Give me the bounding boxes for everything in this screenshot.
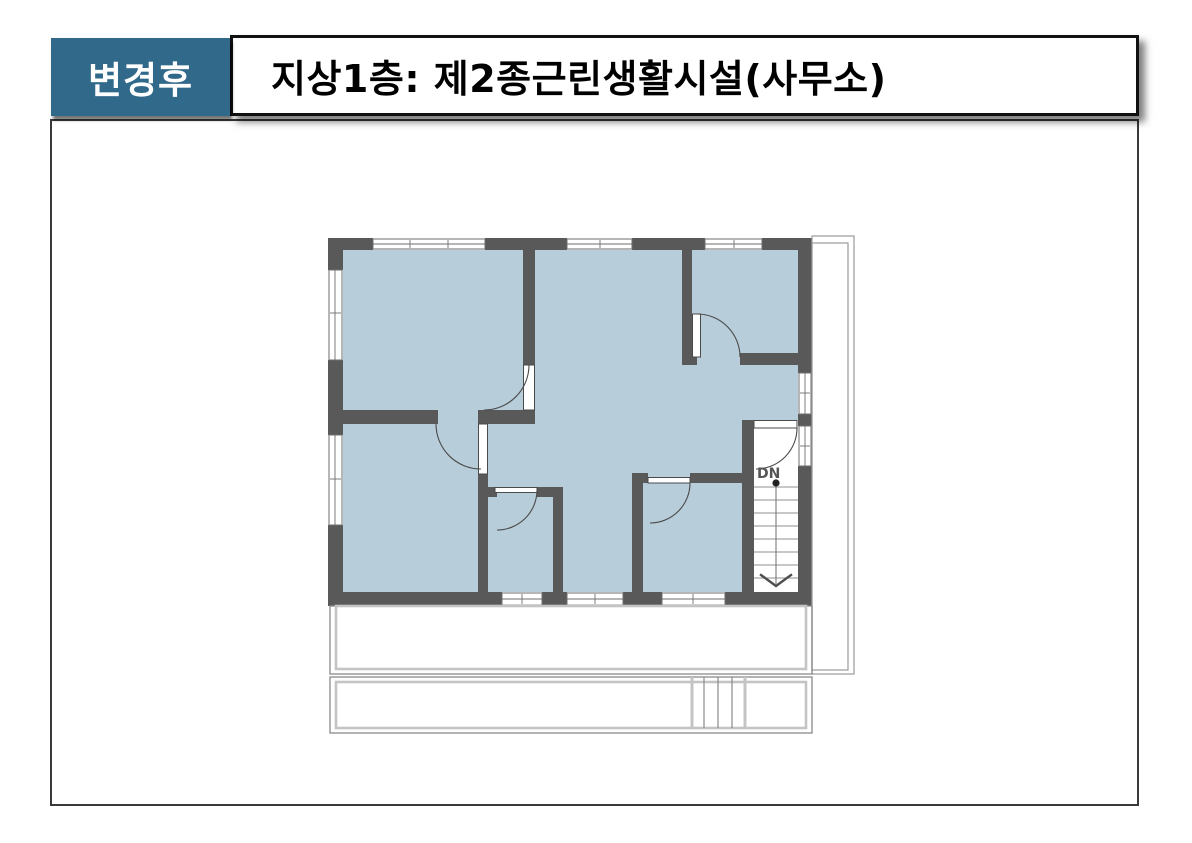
window-right-1	[799, 373, 811, 414]
floor-plan: DN	[0, 0, 1192, 843]
room-bottom-right	[643, 483, 747, 592]
door-opening	[438, 410, 478, 424]
change-status-label: 변경후	[88, 50, 193, 104]
deck-lower	[330, 677, 812, 733]
room-bottom-left	[343, 424, 478, 592]
window-left-2	[329, 435, 342, 525]
room-bottom-small	[488, 497, 553, 592]
deck-steps	[692, 677, 745, 728]
window-bottom-2	[567, 593, 623, 605]
window-top-3	[705, 239, 762, 249]
deck-outlines	[330, 606, 812, 733]
deck-upper	[330, 606, 812, 674]
window-top-1	[373, 239, 485, 249]
room-top-left	[343, 250, 523, 410]
staircase: DN	[754, 466, 798, 586]
room-top-right	[692, 250, 798, 353]
change-status-badge: 변경후	[51, 38, 230, 116]
door-stairs	[754, 421, 797, 470]
stair-start-dot	[772, 479, 779, 486]
eave-outline	[812, 236, 854, 674]
door-opening	[697, 353, 740, 365]
window-left-1	[329, 270, 342, 360]
window-top-2	[567, 239, 632, 249]
window-bottom-3	[662, 593, 725, 605]
window-right-2	[799, 426, 811, 466]
window-bottom-1	[502, 593, 542, 605]
